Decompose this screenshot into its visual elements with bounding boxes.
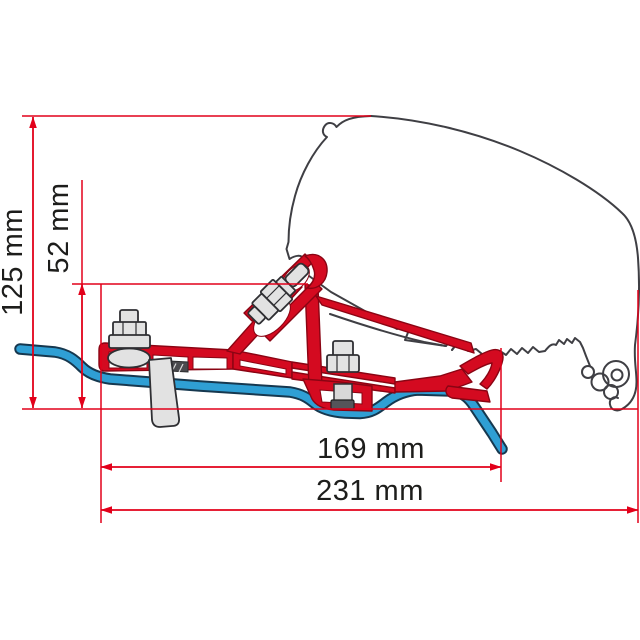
beam-slot-3 <box>193 357 227 369</box>
dimension-label-52mm: 52 mm <box>43 182 75 273</box>
dimension-label-231mm: 231 mm <box>316 475 424 507</box>
profile-curl-blob <box>604 385 618 399</box>
dimension-label-169mm: 169 mm <box>317 433 425 465</box>
right-foot <box>446 386 490 402</box>
profile-curl-large-inner <box>612 370 623 381</box>
awning-case-left-edge <box>287 116 372 273</box>
awning-case-right-edge <box>371 116 639 410</box>
dimension-labels: 125 mm 52 mm 169 mm 231 mm <box>0 182 425 507</box>
profile-curl-small <box>582 366 594 378</box>
right-bolt-head <box>327 355 359 372</box>
mount-profile-zigzag <box>500 338 590 366</box>
right-bolt-nut <box>331 400 354 409</box>
left-mounting-bolt <box>108 310 150 368</box>
left-bolt-flange <box>109 335 150 348</box>
diagram-canvas: 125 mm 52 mm 169 mm 231 mm <box>0 0 640 640</box>
profile-curl-large <box>603 361 629 387</box>
left-bolt-dome-washer <box>108 349 150 368</box>
adapter-dimension-diagram: 125 mm 52 mm 169 mm 231 mm <box>0 0 640 640</box>
dimension-label-125mm: 125 mm <box>0 208 29 316</box>
